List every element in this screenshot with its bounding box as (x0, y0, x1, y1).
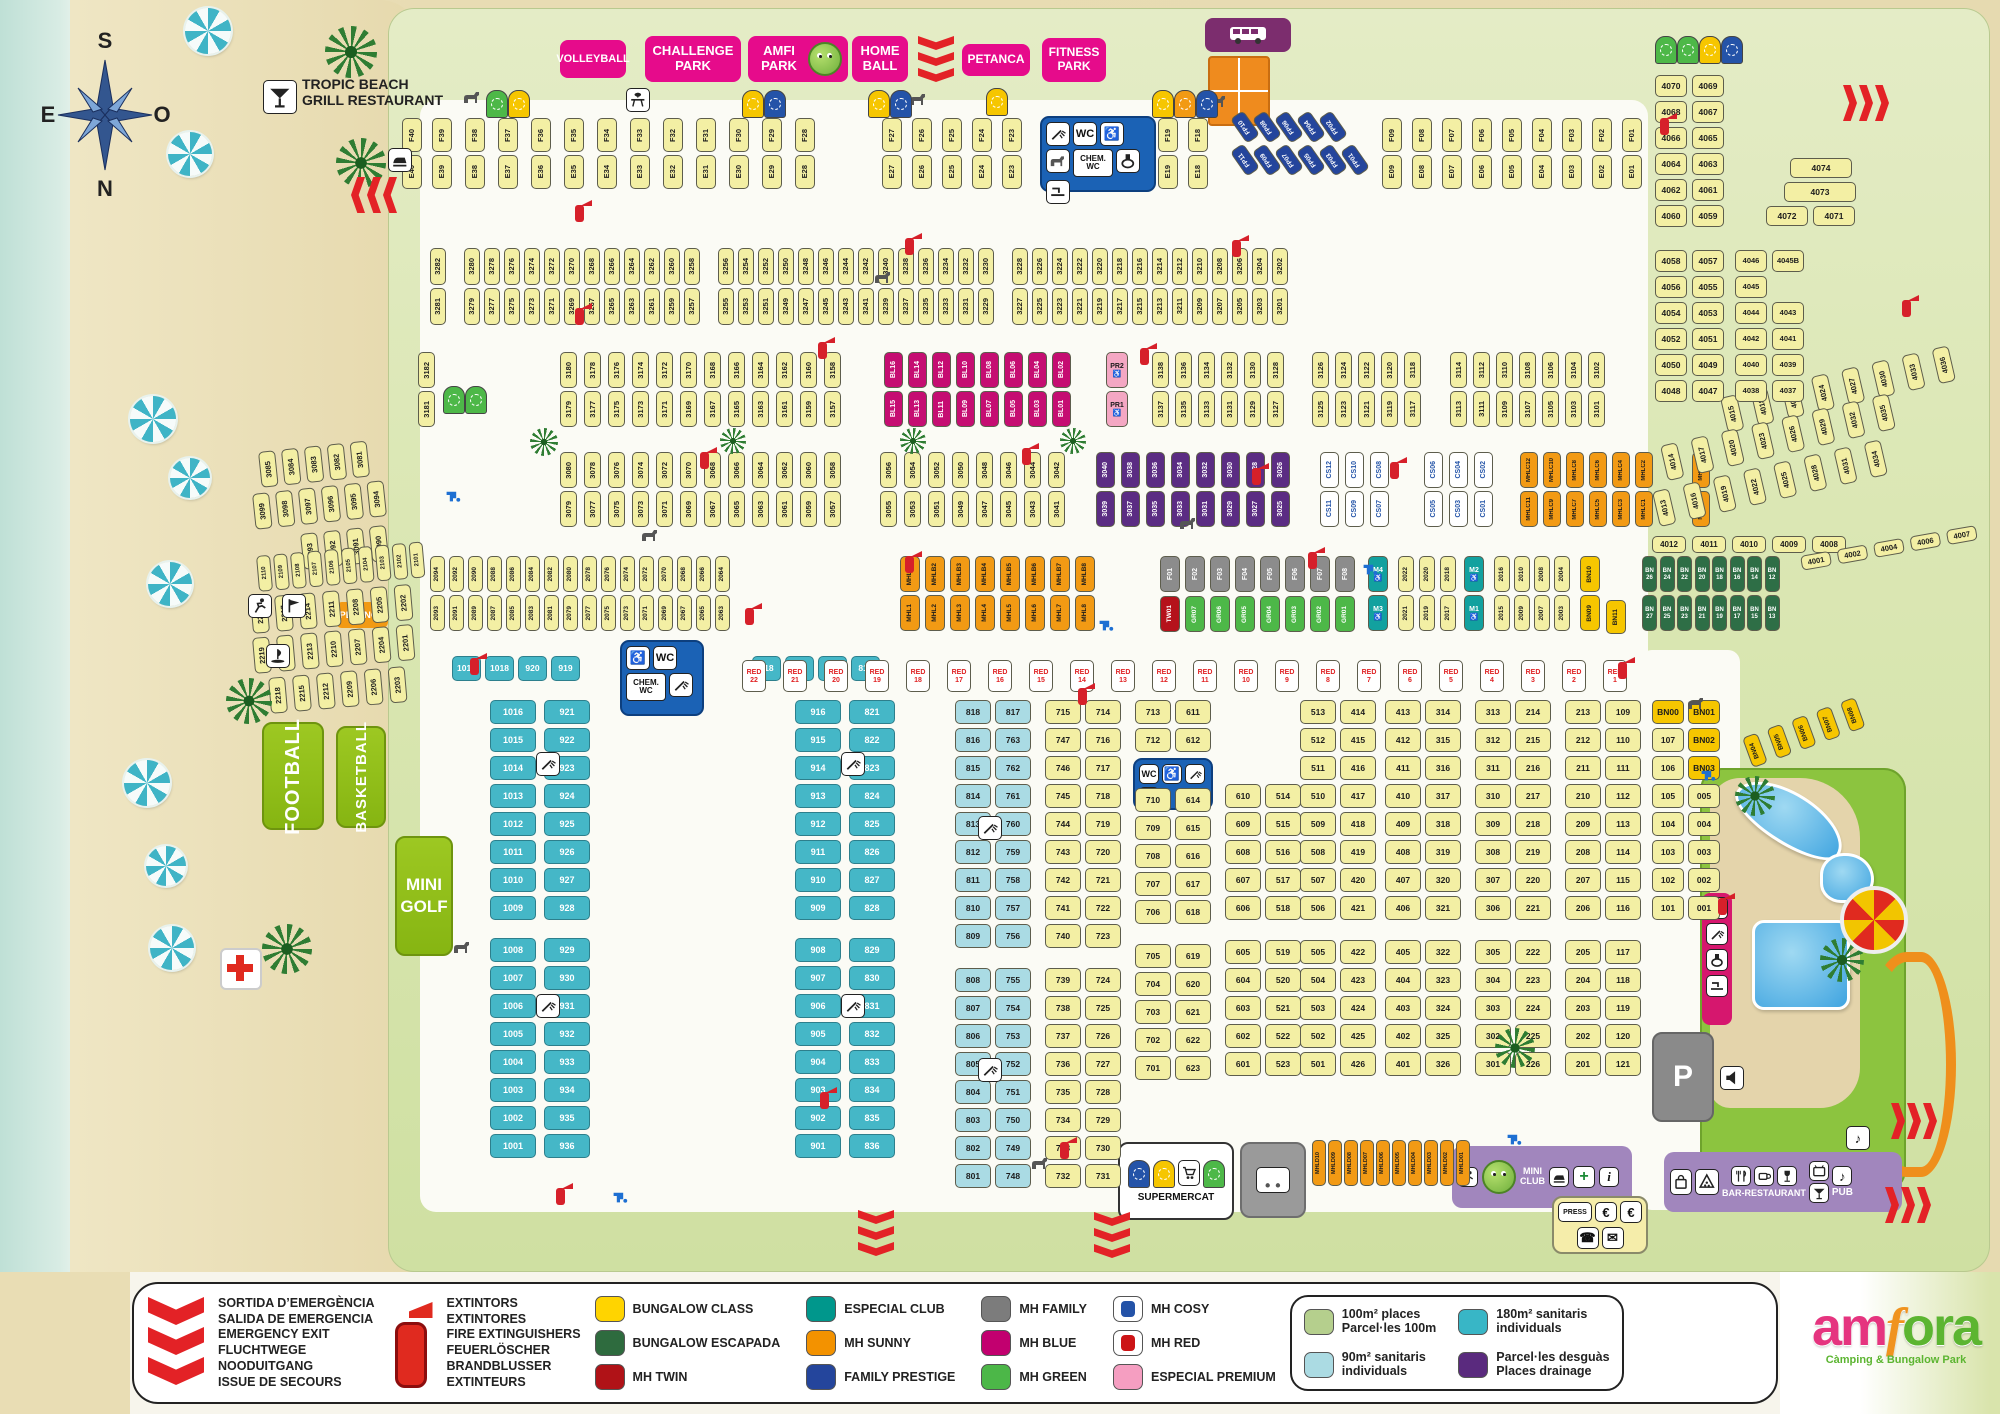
shower-icon (536, 994, 560, 1018)
legend-type-label: FAMILY PRESTIGE (844, 1370, 955, 1384)
recycle-bin-icon (890, 90, 912, 118)
legend-swatch (1304, 1352, 1334, 1378)
emergency-exit-label: SALIDA DE EMERGENCIA (218, 1312, 375, 1328)
emergency-exit-down-icon (858, 1210, 894, 1256)
fire-extinguisher-icon (556, 1188, 565, 1205)
beach-umbrella-icon (170, 458, 210, 498)
legend-swatch (1304, 1309, 1334, 1335)
legend-type-label: BUNGALOW ESCAPADA (633, 1336, 781, 1350)
legend-type-label: MH BLUE (1019, 1336, 1076, 1350)
fire-extinguisher-icon (575, 308, 584, 325)
beach-umbrella-icon (130, 396, 176, 442)
amfora-logo: amfora Càmping & Bungalow Park (1798, 1296, 1994, 1366)
recycle-bin-icon (486, 90, 508, 118)
legend-swatch (981, 1296, 1011, 1322)
legend-type-item: MH COSY (1113, 1295, 1276, 1323)
legend-swatch (806, 1364, 836, 1390)
legend-swatch (981, 1364, 1011, 1390)
fire-extinguisher-icon (1022, 448, 1031, 465)
legend-size-item: 100m² placesParcel·les 100m (1304, 1303, 1437, 1340)
recycle-bin-icon (764, 90, 786, 118)
iron-icon (388, 148, 412, 172)
logo-tagline: Càmping & Bungalow Park (1798, 1354, 1994, 1366)
water-tap-icon (445, 487, 461, 508)
dog-area-icon (1686, 696, 1706, 715)
flag-icon (282, 594, 306, 618)
emergency-exit-right-icon (1885, 1187, 1931, 1223)
legend-type-item: MH GREEN (981, 1363, 1087, 1391)
legend-type-item: FAMILY PRESTIGE (806, 1363, 955, 1391)
palm-tree-icon (226, 678, 272, 724)
legend-type-item: BUNGALOW CLASS (595, 1295, 781, 1323)
legend-size-label: 90m² sanitarisindividuals (1342, 1351, 1426, 1379)
fire-extinguisher-icon (905, 238, 914, 255)
dog-area-icon (1178, 516, 1198, 535)
beach-umbrella-icon (168, 132, 212, 176)
water-tap-icon (612, 1188, 628, 1209)
legend-type-label: MH GREEN (1019, 1370, 1086, 1384)
emergency-exit-right-icon (1891, 1103, 1937, 1139)
legend-type-item: ESPECIAL PREMIUM (1113, 1363, 1276, 1391)
water-tap-icon (1098, 616, 1114, 637)
fire-extinguisher-icon (820, 1092, 829, 1109)
palm-tree-icon (1060, 428, 1086, 454)
fire-extinguisher-label: EXTINTORES (447, 1312, 581, 1328)
recycle-bin-icon (868, 90, 890, 118)
legend-type-item: MH BLUE (981, 1329, 1087, 1357)
legend-pitch-sizes: 100m² placesParcel·les 100m90m² sanitari… (1290, 1295, 1624, 1391)
emergency-exit-up-icon (918, 36, 954, 82)
legend-type-item: MH TWIN (595, 1363, 781, 1391)
recycle-bin-icon (1152, 90, 1174, 118)
legend-swatch (595, 1364, 625, 1390)
fire-extinguisher-icon (1902, 300, 1911, 317)
recycle-bin-icon (1655, 36, 1677, 64)
emergency-exit-label: EMERGENCY EXIT (218, 1327, 375, 1343)
fire-extinguisher-label: EXTINTEURS (447, 1375, 581, 1391)
emergency-exit-labels: SORTIDA D’EMERGÈNCIASALIDA DE EMERGENCIA… (218, 1296, 375, 1391)
water-tap-icon (1362, 560, 1378, 581)
legend-size-item: Parcel·les desguàsPlaces drainage (1458, 1346, 1609, 1383)
emergency-exit-left-icon (351, 177, 397, 213)
palm-tree-icon (720, 428, 746, 454)
legend-swatch (595, 1330, 625, 1356)
palm-tree-icon (1495, 1028, 1535, 1068)
legend-type-label: MH SUNNY (844, 1336, 911, 1350)
dog-area-icon (452, 940, 472, 959)
fire-extinguisher-icon (1060, 1142, 1069, 1159)
dog-area-icon (1030, 1156, 1050, 1175)
surf-icon (266, 644, 290, 668)
recycle-bin-icon (1677, 36, 1699, 64)
shower-icon (978, 1058, 1002, 1082)
emergency-exit-right-icon (1843, 85, 1889, 121)
fire-extinguisher-icon (905, 556, 914, 573)
emergency-exit-label: ISSUE DE SECOURS (218, 1375, 375, 1391)
legend-swatch (981, 1330, 1011, 1356)
shower-icon (841, 994, 865, 1018)
fire-extinguisher-label: BRANDBLUSSER (447, 1359, 581, 1375)
legend-swatch (1113, 1364, 1143, 1390)
runner-icon (248, 594, 272, 618)
shower-icon (536, 752, 560, 776)
legend-type-label: ESPECIAL CLUB (844, 1302, 944, 1316)
legend-size-label: Parcel·les desguàsPlaces drainage (1496, 1351, 1609, 1379)
legend-swatch (1113, 1330, 1143, 1356)
palm-tree-icon (262, 924, 312, 974)
emergency-exit-icon (148, 1297, 204, 1389)
dog-area-icon (873, 270, 893, 289)
legend-size-label: 180m² sanitarisindividuals (1496, 1308, 1587, 1336)
water-tap-icon (1506, 1130, 1522, 1151)
palm-tree-icon (325, 26, 377, 78)
shower-icon (978, 816, 1002, 840)
fire-extinguisher-icon (1618, 662, 1627, 679)
map-markers (0, 0, 2000, 1414)
beach-umbrella-icon (150, 926, 194, 970)
legend-swatch (806, 1330, 836, 1356)
emergency-exit-label: NOODUITGANG (218, 1359, 375, 1375)
water-tap-icon (1700, 766, 1716, 787)
fire-extinguisher-icon (1390, 462, 1399, 479)
emergency-exit-down-icon (1094, 1212, 1130, 1258)
legend-type-item: MH FAMILY (981, 1295, 1087, 1323)
legend-type-label: MH TWIN (633, 1370, 688, 1384)
fire-extinguisher-icon (1140, 348, 1149, 365)
recycle-bin-icon (1174, 90, 1196, 118)
legend-size-label: 100m² placesParcel·les 100m (1342, 1308, 1437, 1336)
campsite-map: S N E O TROPIC BEACHGRILL RESTAURANT VOL… (0, 0, 2000, 1414)
legend-type-item: MH SUNNY (806, 1329, 955, 1357)
legend-pitch-types: BUNGALOW CLASSBUNGALOW ESCAPADAMH TWINES… (595, 1295, 1276, 1391)
fire-extinguisher-icon (745, 608, 754, 625)
fire-extinguisher-labels: EXTINTORSEXTINTORESFIRE EXTINGUISHERSFEU… (447, 1296, 581, 1391)
beach-umbrella-icon (185, 8, 231, 54)
emergency-exit-label: FLUCHTWEGE (218, 1343, 375, 1359)
legend-type-item: BUNGALOW ESCAPADA (595, 1329, 781, 1357)
beach-umbrella-icon (146, 846, 186, 886)
fire-extinguisher-icon (1078, 688, 1087, 705)
shower-icon (841, 752, 865, 776)
fire-extinguisher-icon (1660, 118, 1669, 135)
legend-box: SORTIDA D’EMERGÈNCIASALIDA DE EMERGENCIA… (132, 1282, 1778, 1404)
legend-size-item: 90m² sanitarisindividuals (1304, 1346, 1437, 1383)
recycle-bin-icon (986, 88, 1008, 116)
fire-extinguisher-icon (1718, 898, 1727, 915)
fire-extinguisher-icon (1308, 552, 1317, 569)
legend-type-item: ESPECIAL CLUB (806, 1295, 955, 1323)
legend-swatch (1458, 1352, 1488, 1378)
legend-type-label: MH COSY (1151, 1302, 1209, 1316)
recycle-bin-icon (742, 90, 764, 118)
legend-swatch (1458, 1309, 1488, 1335)
dog-area-icon (462, 90, 482, 109)
picnic-icon (626, 88, 650, 112)
legend-type-label: ESPECIAL PREMIUM (1151, 1370, 1276, 1384)
fire-extinguisher-icon (575, 205, 584, 222)
recycle-bin-icon (443, 386, 465, 414)
palm-tree-icon (530, 428, 558, 456)
dog-area-icon (640, 528, 660, 547)
recycle-bin-icon (1699, 36, 1721, 64)
legend-type-item: MH RED (1113, 1329, 1276, 1357)
recycle-bin-icon (1721, 36, 1743, 64)
fire-extinguisher-label: EXTINTORS (447, 1296, 581, 1312)
recycle-bin-icon (508, 90, 530, 118)
fire-extinguisher-label: FEUERLÖSCHER (447, 1343, 581, 1359)
fire-extinguisher-icon (1252, 468, 1261, 485)
fire-extinguisher-icon (470, 658, 479, 675)
emergency-exit-label: SORTIDA D’EMERGÈNCIA (218, 1296, 375, 1312)
fire-extinguisher-label: FIRE EXTINGUISHERS (447, 1327, 581, 1343)
legend-size-item: 180m² sanitarisindividuals (1458, 1303, 1609, 1340)
fire-extinguisher-icon (700, 452, 709, 469)
legend-swatch (595, 1296, 625, 1322)
beach-umbrella-icon (148, 562, 192, 606)
legend-swatch (1113, 1296, 1143, 1322)
fire-extinguisher-icon (389, 1300, 433, 1386)
legend-type-label: BUNGALOW CLASS (633, 1302, 754, 1316)
beach-umbrella-icon (124, 760, 170, 806)
recycle-bin-icon (1196, 90, 1218, 118)
legend-swatch (806, 1296, 836, 1322)
legend-type-label: MH RED (1151, 1336, 1200, 1350)
legend-type-label: MH FAMILY (1019, 1302, 1087, 1316)
palm-tree-icon (900, 428, 926, 454)
fire-extinguisher-icon (818, 342, 827, 359)
fire-extinguisher-icon (1232, 240, 1241, 257)
recycle-bin-icon (465, 386, 487, 414)
